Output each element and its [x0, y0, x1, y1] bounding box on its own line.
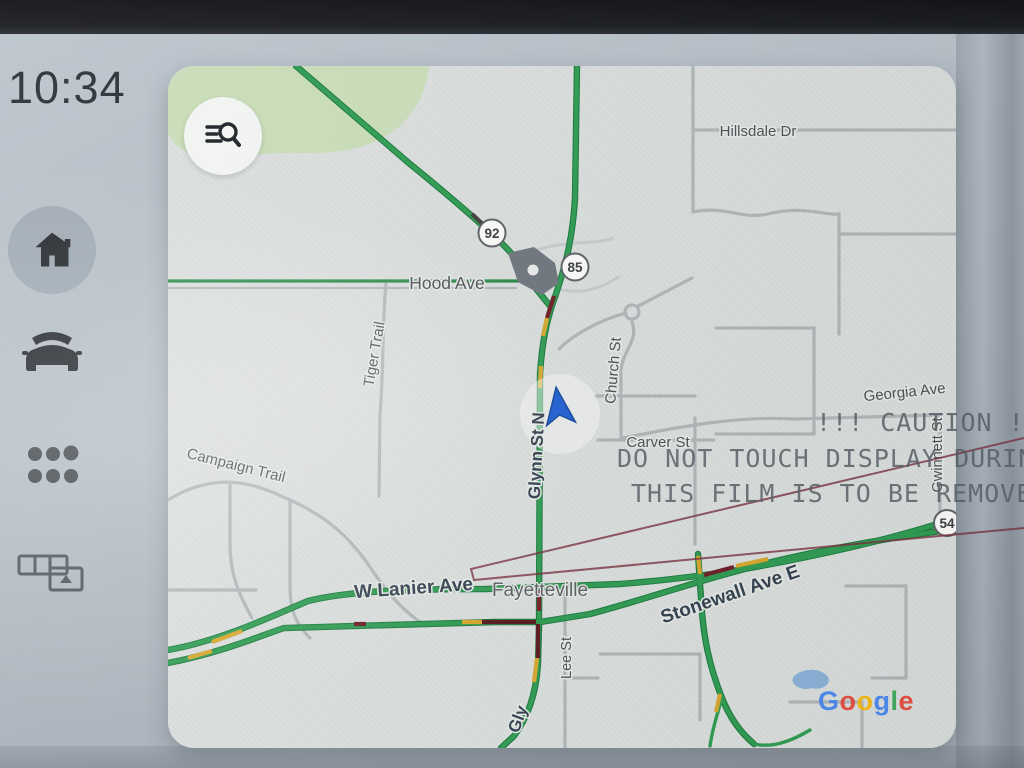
label-tiger-trail: Tiger Trail [360, 320, 388, 388]
label-lee-st: Lee St [559, 637, 575, 679]
film-warning-line3: THIS FILM IS TO BE REMOVED [631, 479, 1024, 508]
route-shield-85: 85 [562, 254, 589, 281]
bottom-bezel-shadow [0, 746, 1024, 768]
app-grid-icon [22, 440, 84, 488]
label-hillsdale-dr: Hillsdale Dr [720, 123, 797, 140]
label-glynn-st-n: Glynn St N [525, 412, 549, 500]
label-georgia-ave: Georgia Ave [863, 380, 947, 406]
svg-text:92: 92 [484, 226, 499, 241]
car-icon [16, 324, 88, 380]
split-screen-button[interactable] [16, 550, 88, 598]
home-icon [30, 228, 74, 272]
vehicle-button[interactable] [16, 324, 88, 380]
home-button[interactable] [8, 206, 96, 294]
right-bezel-shadow [956, 0, 1024, 768]
film-warning-line1: !!! CAUTION !! [816, 408, 1024, 437]
google-logo: Google [818, 686, 914, 717]
label-fayetteville: Fayetteville [492, 580, 588, 601]
route-shield-92: 92 [479, 220, 506, 247]
film-warning-line2: DO NOT TOUCH DISPLAY DURING [617, 444, 1024, 473]
split-screen-icon [16, 550, 88, 598]
svg-text:54: 54 [939, 516, 955, 531]
svg-text:85: 85 [567, 260, 583, 275]
google-map[interactable]: 92 85 54 Hillsdale Dr Hood Ave Tiger Tra… [168, 66, 956, 748]
app-grid-button[interactable] [22, 440, 84, 488]
route-shield-54: 54 [934, 510, 956, 536]
clock: 10:34 [8, 62, 126, 114]
map-search-button[interactable] [184, 97, 262, 175]
label-hood-ave: Hood Ave [409, 273, 485, 293]
label-campaign-trail: Campaign Trail [185, 445, 287, 486]
search-icon [204, 119, 242, 153]
label-w-lanier-ave: W Lanier Ave [354, 574, 474, 603]
top-bezel [0, 0, 1024, 34]
